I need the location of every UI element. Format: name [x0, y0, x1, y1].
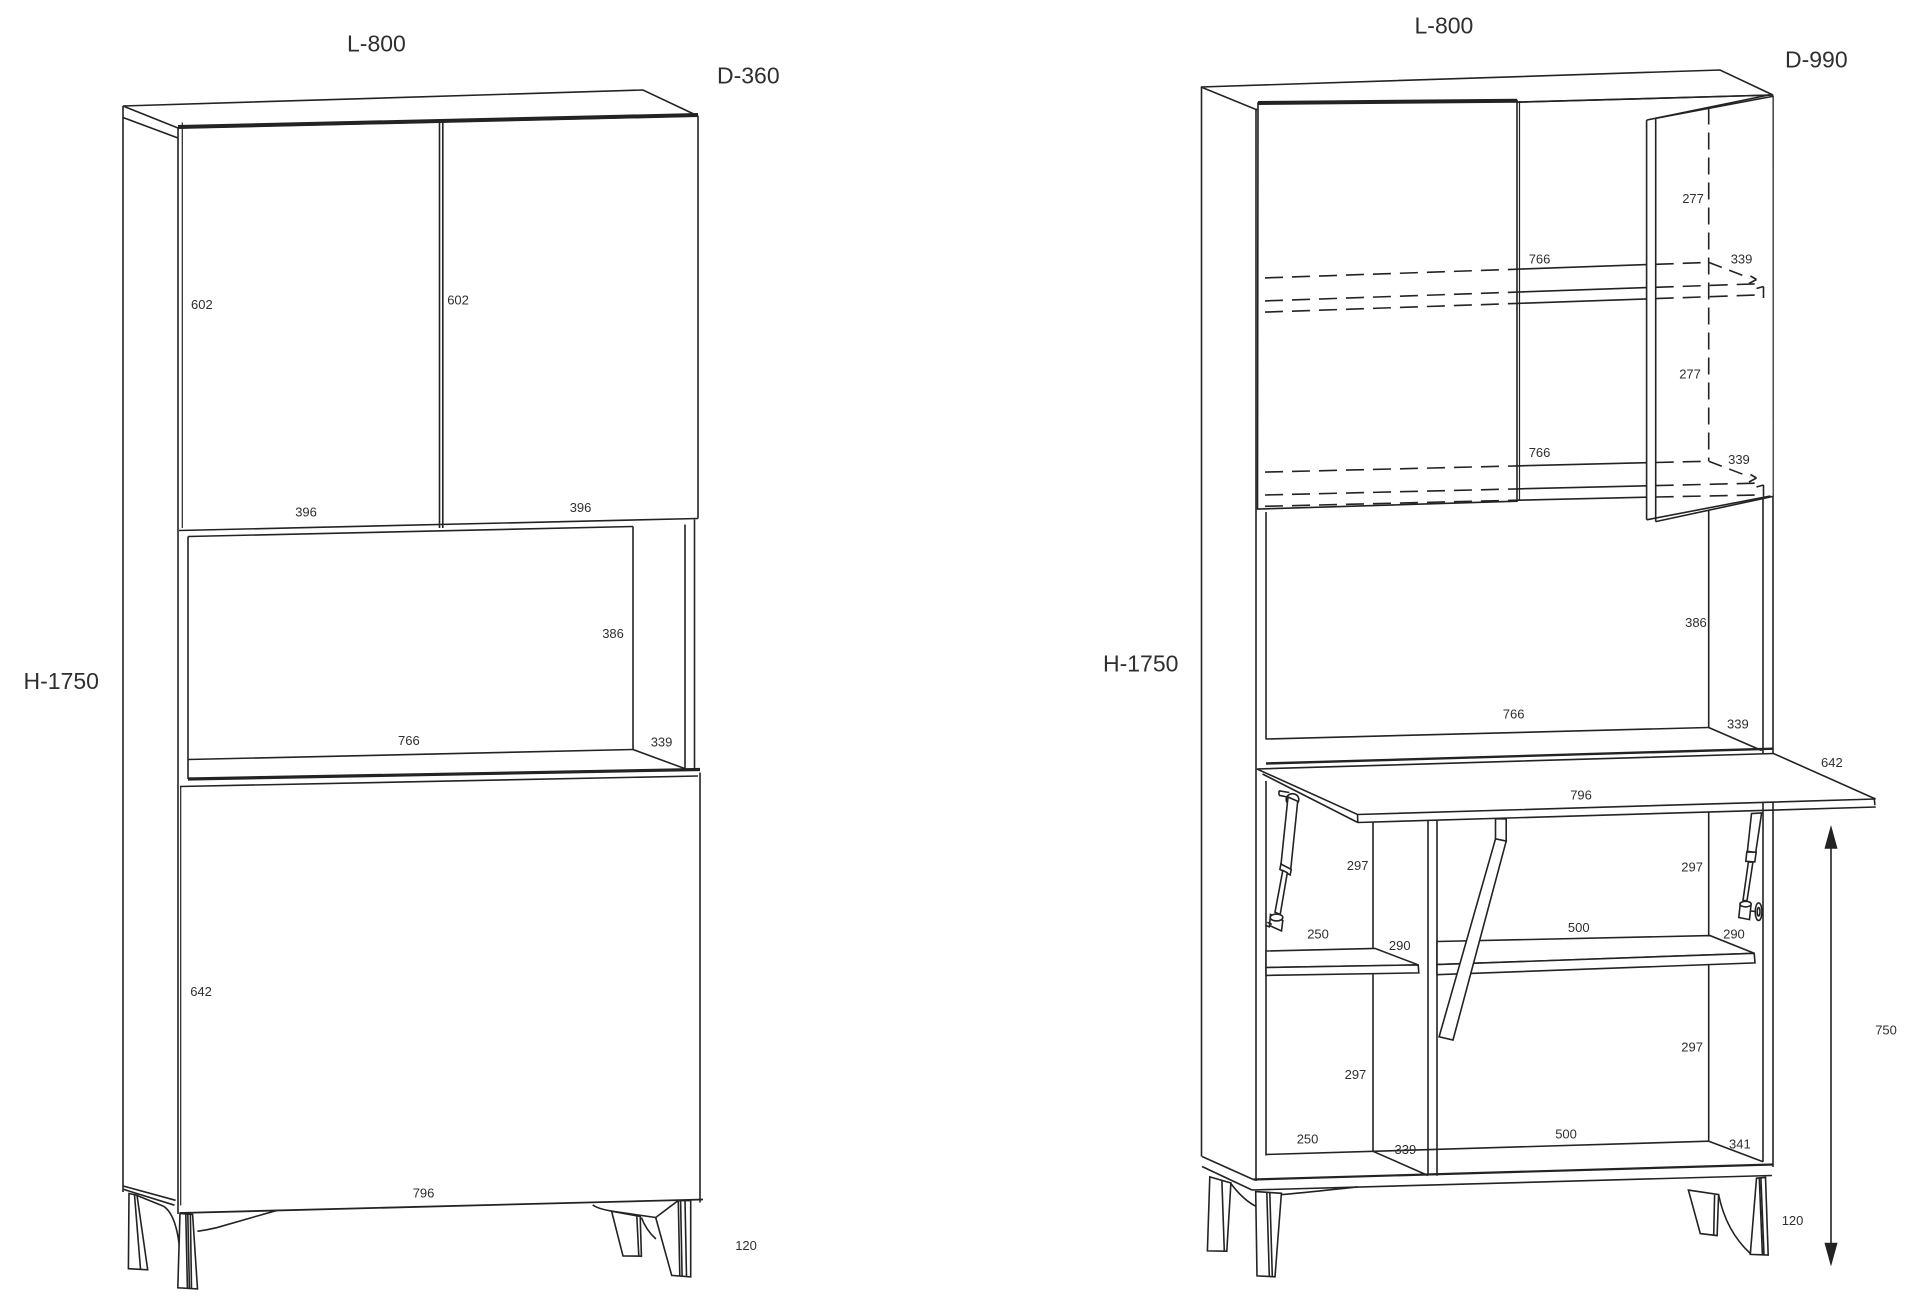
svg-text:120: 120	[735, 1238, 757, 1253]
svg-text:602: 602	[191, 297, 213, 312]
svg-text:290: 290	[1723, 927, 1745, 942]
svg-text:250: 250	[1307, 927, 1329, 942]
svg-text:D-360: D-360	[717, 63, 780, 89]
svg-text:277: 277	[1679, 367, 1701, 382]
svg-text:796: 796	[413, 1186, 435, 1201]
svg-text:D-990: D-990	[1785, 47, 1848, 73]
svg-text:L-800: L-800	[1415, 13, 1474, 39]
svg-text:796: 796	[1570, 788, 1592, 803]
svg-text:339: 339	[1395, 1142, 1417, 1157]
svg-text:602: 602	[447, 293, 469, 308]
svg-text:339: 339	[651, 735, 673, 750]
svg-text:339: 339	[1728, 452, 1750, 467]
svg-text:750: 750	[1875, 1023, 1897, 1038]
svg-text:297: 297	[1347, 858, 1369, 873]
svg-text:386: 386	[602, 626, 624, 641]
svg-text:297: 297	[1345, 1067, 1367, 1082]
svg-text:290: 290	[1389, 938, 1411, 953]
svg-text:341: 341	[1729, 1136, 1751, 1151]
svg-text:H-1750: H-1750	[24, 668, 99, 694]
svg-text:396: 396	[570, 500, 592, 515]
svg-text:500: 500	[1555, 1127, 1577, 1142]
svg-text:766: 766	[1529, 252, 1551, 267]
svg-text:277: 277	[1682, 191, 1704, 206]
svg-text:L-800: L-800	[347, 31, 406, 57]
svg-text:H-1750: H-1750	[1103, 651, 1178, 677]
svg-text:386: 386	[1685, 615, 1707, 630]
svg-text:250: 250	[1297, 1131, 1319, 1146]
svg-text:339: 339	[1727, 716, 1749, 731]
svg-text:297: 297	[1681, 860, 1703, 875]
svg-text:500: 500	[1568, 920, 1590, 935]
svg-text:339: 339	[1731, 252, 1753, 267]
svg-text:642: 642	[1821, 755, 1843, 770]
svg-text:396: 396	[295, 505, 317, 520]
svg-text:766: 766	[1529, 445, 1551, 460]
svg-text:766: 766	[398, 733, 420, 748]
svg-text:297: 297	[1681, 1040, 1703, 1055]
svg-text:642: 642	[190, 984, 212, 999]
svg-text:766: 766	[1503, 707, 1525, 722]
svg-text:120: 120	[1782, 1213, 1804, 1228]
